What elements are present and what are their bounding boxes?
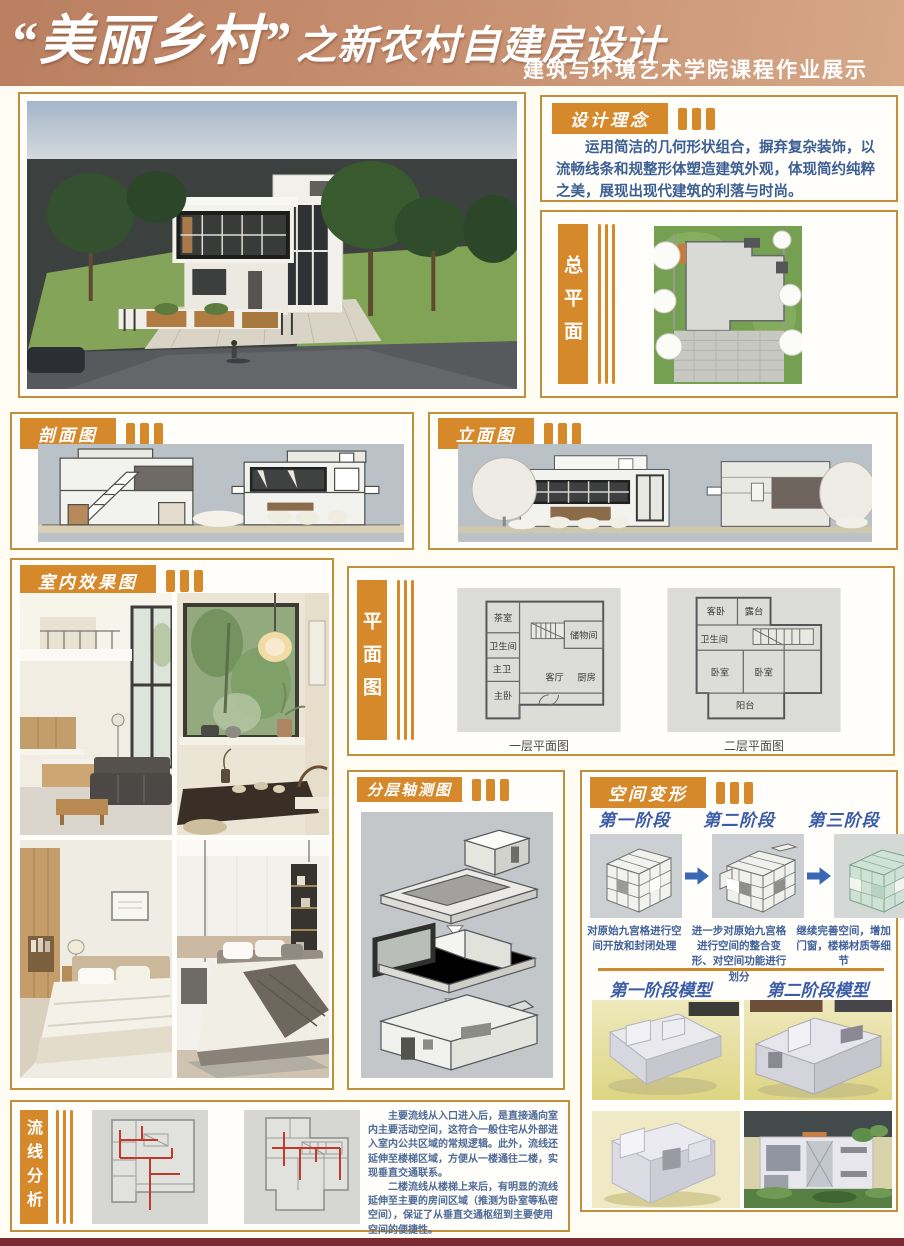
second-floor-plan-drawing: 客卧 露台 卫生间 卧室 卧室 阳台 <box>665 588 843 732</box>
exterior-render-panel <box>18 92 526 398</box>
model-stage-1-title: 第一阶段模型 <box>582 976 739 1001</box>
poster-title-main: “美丽乡村” <box>10 11 292 71</box>
sky <box>27 101 517 161</box>
section-drawing-illustration <box>38 444 404 542</box>
room-label: 卧室 <box>754 667 772 678</box>
model-photo-stage1-top <box>592 1000 740 1100</box>
triple-lines-icon <box>598 224 615 384</box>
interior-photo-tea-room <box>177 593 329 835</box>
site-plan-illustration <box>654 226 802 384</box>
circulation-plan-level1 <box>92 1110 208 1224</box>
model-photo-stage1-detail <box>592 1111 740 1208</box>
circulation-paragraph-2: 二楼流线从楼梯上来后，有明显的流线延伸至主要的房间区域（推测为卧室等私密空间），… <box>368 1181 562 1238</box>
design-concept-text: 运用简洁的几何形状组合，摒弃复杂装饰，以流畅线条和规整形体塑造建筑外观，体现简约… <box>556 138 882 203</box>
circulation-paragraph-1: 主要流线从入口进入后，是直接通向室内主要活动空间，这符合一般住宅从外部进入室内公… <box>368 1110 562 1181</box>
exterior-render-illustration <box>27 101 517 389</box>
room-label: 卫生间 <box>700 633 728 644</box>
interior-render-label: 室内效果图 <box>20 565 156 596</box>
elevation-side <box>707 462 872 529</box>
paved-court <box>674 331 784 382</box>
section-left <box>60 449 193 525</box>
triple-bars-icon <box>126 423 163 445</box>
stage-3-title: 第三阶段 <box>791 806 896 831</box>
second-floor-plan: 客卧 露台 卫生间 卧室 卧室 阳台 二层平面图 <box>665 588 843 754</box>
footer-band <box>0 1238 904 1246</box>
elevation-illustration <box>458 444 872 542</box>
triple-bars-icon <box>166 570 203 592</box>
stage-image-row <box>590 834 904 918</box>
stage-1-cube-image <box>590 834 682 918</box>
poster-page: “美丽乡村” 之新农村自建房设计 建筑与环境艺术学院课程作业展示 <box>0 0 904 1246</box>
model-photo-grid <box>592 1000 892 1208</box>
building-footprint <box>686 242 784 331</box>
first-floor-plan-drawing: 茶室 卫生间 主卫 主卧 客厅 厨房 储物间 <box>455 588 623 732</box>
design-concept-panel: 设计理念 运用简洁的几何形状组合，摒弃复杂装饰，以流畅线条和规整形体塑造建筑外观… <box>540 95 898 202</box>
space-transformation-panel: 空间变形 第一阶段 第二阶段 第三阶段 <box>580 770 898 1212</box>
first-floor-plan-caption: 一层平面图 <box>509 737 569 754</box>
room-label: 客卧 <box>707 605 725 616</box>
room-label: 主卧 <box>494 690 512 701</box>
stage-2-title: 第二阶段 <box>687 806 792 831</box>
axonometric-label: 分层轴测图 <box>357 777 462 802</box>
header-banner: “美丽乡村” 之新农村自建房设计 建筑与环境艺术学院课程作业展示 <box>0 0 904 86</box>
stage-1-title: 第一阶段 <box>582 806 687 831</box>
elevation-front <box>472 456 669 530</box>
triple-bars-icon <box>472 779 509 801</box>
room-label: 阳台 <box>736 700 754 711</box>
room-label: 储物间 <box>570 630 598 641</box>
model-photo-stage2-exterior <box>744 1111 892 1208</box>
axonometric-illustration <box>361 812 553 1078</box>
room-label: 主卫 <box>493 664 511 675</box>
room-label: 厨房 <box>577 671 595 682</box>
site-plan-panel: 总平面图 <box>540 210 898 398</box>
interior-photo-living-room <box>20 593 172 835</box>
circulation-plan-level2 <box>244 1110 360 1224</box>
room-label: 茶室 <box>494 612 512 623</box>
circulation-analysis-label: 流线分析 <box>20 1110 48 1224</box>
first-floor-plan: 茶室 卫生间 主卫 主卧 客厅 厨房 储物间 一层平面图 <box>455 588 623 754</box>
triple-bars-icon <box>544 423 581 445</box>
interior-photo-grid <box>20 593 329 1078</box>
model-stage-2-title: 第二阶段模型 <box>739 976 896 1001</box>
model-photo-stage2-top <box>744 1000 892 1100</box>
triple-lines-icon <box>56 1110 73 1224</box>
section-drawing-panel: 剖面图 <box>10 412 414 550</box>
stage-arrow-icon <box>807 865 831 887</box>
interior-photo-bedroom-1 <box>20 840 172 1078</box>
model-title-row: 第一阶段模型 第二阶段模型 <box>582 976 896 1001</box>
interior-photo-bedroom-2 <box>177 840 329 1078</box>
axonometric-panel: 分层轴测图 <box>347 770 565 1090</box>
design-concept-label: 设计理念 <box>552 103 668 134</box>
floor-plan-panel: 平面图 <box>347 566 895 756</box>
site-plan-label: 总平面图 <box>558 224 588 384</box>
stage-title-row: 第一阶段 第二阶段 第三阶段 <box>582 806 896 831</box>
room-label: 卧室 <box>711 667 729 678</box>
interior-render-panel: 室内效果图 <box>10 558 334 1090</box>
elevation-drawing-panel: 立面图 <box>428 412 898 550</box>
triple-lines-icon <box>397 580 414 740</box>
car <box>27 347 85 373</box>
stage-arrow-icon <box>685 865 709 887</box>
poster-subtitle: 建筑与环境艺术学院课程作业展示 <box>523 54 868 84</box>
divider-line <box>598 968 884 971</box>
stage-3-cube-image <box>834 834 904 918</box>
car-silhouette <box>193 511 245 527</box>
room-label: 客厅 <box>545 671 563 682</box>
room-label: 卫生间 <box>489 640 517 651</box>
section-right <box>232 451 379 525</box>
space-transformation-label: 空间变形 <box>590 777 706 808</box>
circulation-analysis-text: 主要流线从入口进入后，是直接通向室内主要活动空间，这符合一般住宅从外部进入室内公… <box>368 1110 562 1238</box>
circulation-analysis-panel: 流线分析 <box>10 1100 570 1232</box>
second-floor-plan-caption: 二层平面图 <box>724 737 784 754</box>
triple-bars-icon <box>716 782 753 804</box>
stage-2-cube-image <box>712 834 804 918</box>
floor-plan-label: 平面图 <box>357 580 387 740</box>
triple-bars-icon <box>678 108 715 130</box>
room-label: 露台 <box>745 605 763 616</box>
